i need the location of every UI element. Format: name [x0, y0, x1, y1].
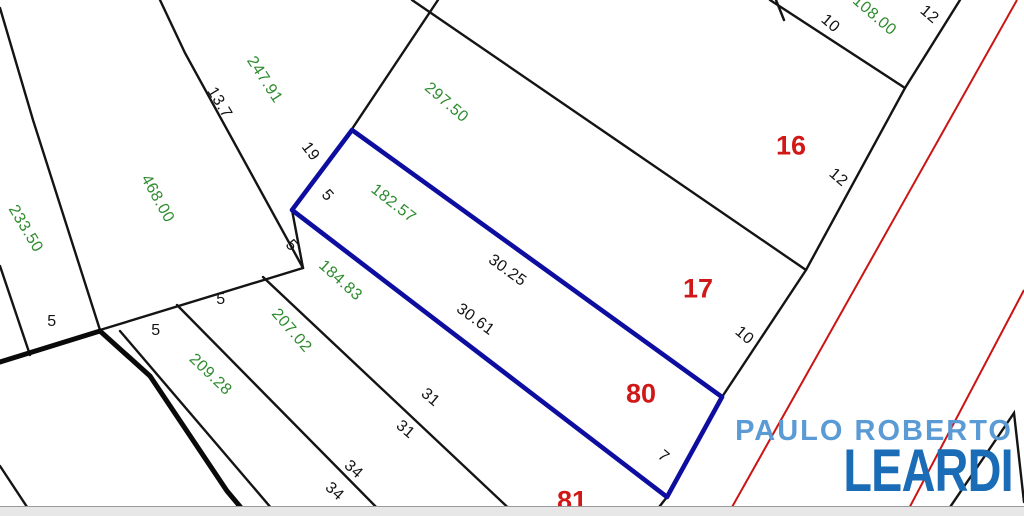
logo-text-leardi: LEARDI: [796, 446, 1013, 495]
horizontal-scrollbar-track[interactable]: [0, 506, 1024, 516]
highlighted-lot-80-outline: [292, 130, 722, 497]
lot-number-label: 16: [776, 133, 806, 160]
lot-number-label: 17: [683, 276, 713, 303]
dimension-label: 5: [216, 292, 225, 308]
dimension-label: 5: [151, 323, 160, 339]
dimension-label: 5: [47, 314, 56, 330]
cadastral-plat-map: 233.50468.00247.91297.50182.57184.83207.…: [0, 0, 1024, 516]
road-edge-thick-line: [0, 331, 248, 516]
lot-number-label: 80: [626, 381, 656, 408]
leardi-brand-logo: PAULO ROBERTO LEARDI: [735, 417, 1013, 495]
